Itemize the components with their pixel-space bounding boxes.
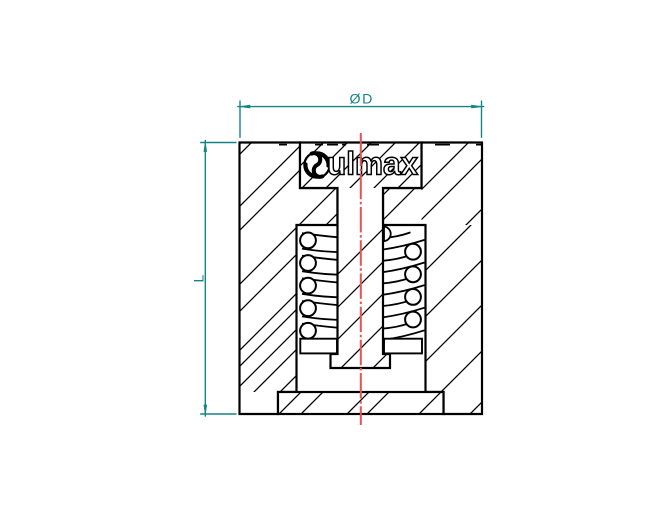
svg-text:ulmax: ulmax bbox=[327, 146, 418, 182]
svg-text:L: L bbox=[191, 274, 207, 282]
svg-text:ØD: ØD bbox=[350, 92, 374, 108]
